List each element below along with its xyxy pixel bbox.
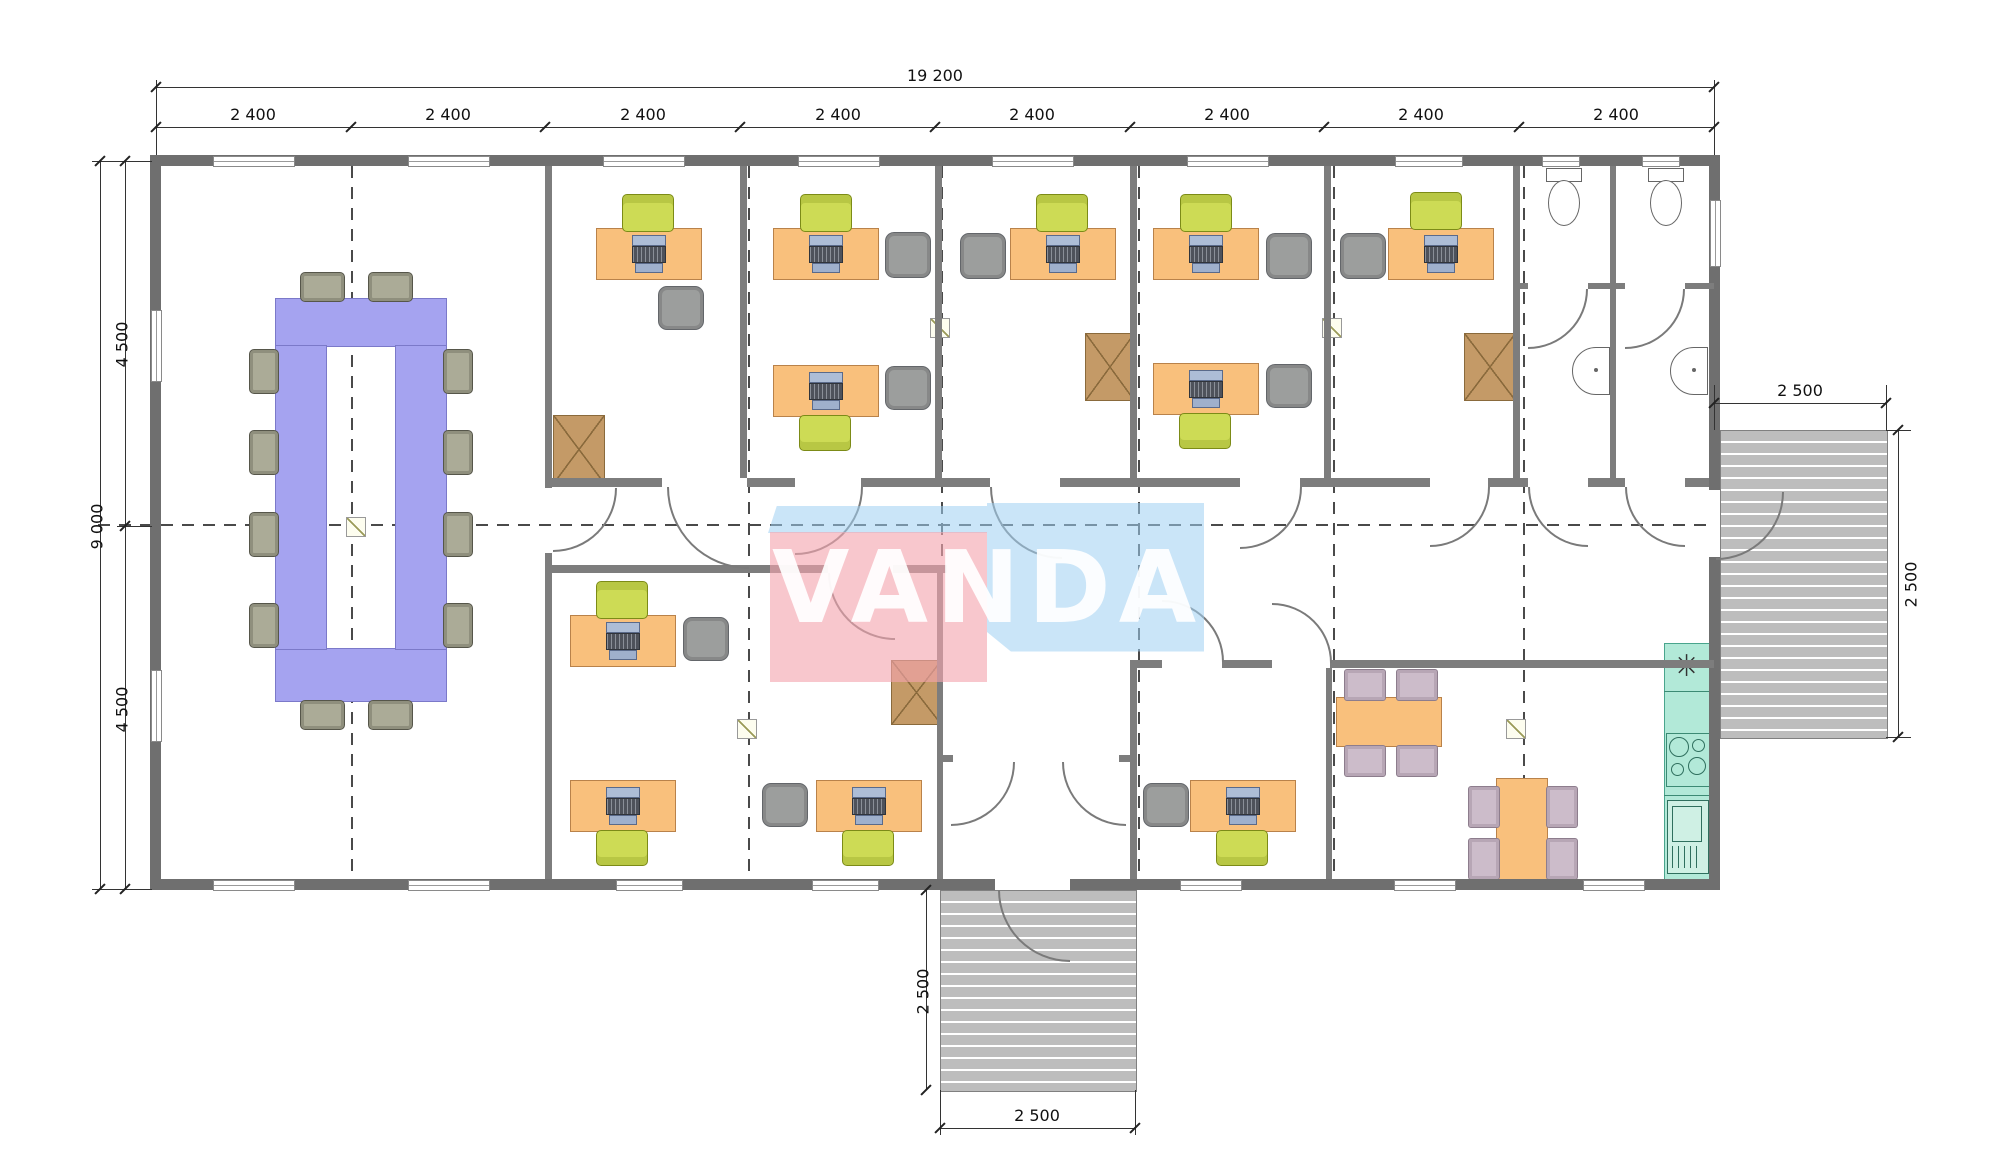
door-arc: [667, 487, 749, 569]
exterior-wall-left: [150, 155, 161, 890]
dim-half-height: 4 500: [113, 310, 132, 380]
dimension-line-sideporch-depth: [1898, 430, 1899, 737]
wall-wc-divider: [1610, 166, 1616, 482]
computer-icon: [850, 787, 886, 823]
conference-chair: [300, 700, 345, 730]
window: [151, 310, 162, 382]
conference-chair: [443, 349, 473, 394]
window: [1395, 156, 1463, 167]
window: [1187, 156, 1269, 167]
wall-conference-office-lower: [545, 553, 552, 879]
dining-chair: [1344, 745, 1386, 777]
dining-table: [1336, 697, 1442, 747]
dim-bay: 2 400: [1386, 105, 1456, 124]
conference-chair: [249, 430, 279, 475]
conference-chair: [249, 512, 279, 557]
dim-total-width: 19 200: [900, 66, 970, 85]
dim-bay: 2 400: [608, 105, 678, 124]
window: [798, 156, 880, 167]
fridge-door: [1672, 806, 1702, 842]
sink-drain: [1594, 368, 1598, 372]
counter-divider: [1664, 795, 1710, 796]
door-opening: [1625, 478, 1685, 487]
sink-icon: [1670, 347, 1708, 395]
dim-bay: 2 400: [1581, 105, 1651, 124]
window: [992, 156, 1074, 167]
dining-chair: [1546, 786, 1578, 828]
door-opening: [990, 478, 1060, 487]
stove-burner: [1669, 737, 1689, 757]
vestibule-doorwall-stub: [937, 755, 953, 762]
dim-porch-width: 2 500: [1002, 1106, 1072, 1125]
conference-chair: [300, 272, 345, 302]
conference-chair: [368, 700, 413, 730]
office-chair: [762, 783, 808, 827]
stove-burner: [1692, 739, 1705, 752]
task-chair: [1410, 192, 1462, 230]
computer-icon: [807, 235, 843, 271]
dim-porch-depth: 2 500: [914, 957, 933, 1027]
computer-icon: [807, 372, 843, 408]
conference-chair: [249, 349, 279, 394]
conference-chair: [249, 603, 279, 648]
window: [408, 156, 490, 167]
fridge-vents: [1672, 846, 1700, 868]
dimension-line-sideporch-width: [1714, 403, 1886, 404]
office-chair: [885, 366, 931, 410]
conference-table: [275, 648, 447, 702]
vestibule-doorwall-stub: [1119, 755, 1137, 762]
door-arc: [1240, 487, 1302, 549]
wall-office2-office3: [935, 166, 942, 482]
dining-chair: [1468, 838, 1500, 880]
conference-chair: [368, 272, 413, 302]
vestibule-wall-right: [1130, 668, 1137, 879]
window: [213, 880, 295, 891]
window: [1394, 880, 1456, 891]
wall-office4-office5: [1324, 166, 1331, 482]
door-opening: [1528, 478, 1588, 487]
office-chair: [960, 233, 1006, 279]
dimension-line-porch-width: [940, 1128, 1135, 1129]
toilet-icon: [1650, 180, 1682, 226]
side-porch: [1720, 430, 1888, 739]
computer-icon: [1187, 235, 1223, 271]
office-chair: [1266, 233, 1312, 279]
computer-icon: [1422, 235, 1458, 271]
wall-smalloffice-lunch: [1326, 668, 1332, 879]
vanda-logo-text: VANDA: [772, 534, 1192, 644]
office-chair: [1266, 364, 1312, 408]
door-opening: [795, 478, 861, 487]
conference-table: [395, 345, 447, 650]
conference-table: [275, 345, 327, 650]
ceiling-symbol: [737, 719, 757, 739]
door-opening: [1430, 478, 1488, 487]
grid-line: [1333, 166, 1335, 879]
extension-line: [1886, 385, 1887, 430]
door-arc: [1062, 762, 1126, 826]
task-chair: [1180, 194, 1232, 232]
office-chair: [885, 232, 931, 278]
wall-office5-wc: [1513, 166, 1520, 482]
window: [1180, 880, 1242, 891]
door-arc: [1272, 603, 1332, 663]
dimension-line-total: [156, 87, 1714, 88]
window: [1583, 880, 1645, 891]
ceiling-symbol: [346, 517, 366, 537]
office-chair: [1340, 233, 1386, 279]
wall-conference-offices: [545, 166, 552, 488]
conference-chair: [443, 430, 473, 475]
window: [151, 670, 162, 742]
sink-icon: [1572, 347, 1610, 395]
task-chair: [842, 830, 894, 866]
stove-burner: [1671, 763, 1684, 776]
toilet-icon: [1548, 180, 1580, 226]
dining-chair: [1468, 786, 1500, 828]
conference-chair: [443, 512, 473, 557]
computer-icon: [1044, 235, 1080, 271]
door-arc: [1625, 289, 1685, 349]
dim-sideporch-depth: 2 500: [1902, 550, 1921, 620]
door-arc: [1430, 487, 1490, 547]
door-opening: [662, 478, 747, 487]
door-opening: [1240, 478, 1300, 487]
door-arc: [1625, 487, 1685, 547]
dim-total-height: 9 000: [88, 492, 107, 562]
window: [616, 880, 683, 891]
dim-bay: 2 400: [803, 105, 873, 124]
extension-line: [156, 80, 157, 155]
cabinet: [1085, 333, 1135, 401]
grid-line: [1523, 166, 1525, 879]
cabinet: [553, 415, 605, 484]
computer-icon: [604, 622, 640, 658]
window: [812, 880, 879, 891]
floor-plan-canvas: ✳ VANDA 19 200 2 400 2 400 2 400 2 400 2…: [0, 0, 2000, 1160]
wall-office1-office2: [740, 166, 747, 482]
dim-sideporch-width: 2 500: [1765, 381, 1835, 400]
dining-chair: [1344, 669, 1386, 701]
window: [1642, 156, 1680, 167]
dim-bay: 2 400: [218, 105, 288, 124]
office-chair: [658, 286, 704, 330]
conference-chair: [443, 603, 473, 648]
door-arc: [1528, 289, 1588, 349]
dining-chair: [1546, 838, 1578, 880]
cabinet: [1464, 333, 1516, 401]
wall-office3-office4: [1130, 166, 1137, 482]
office-chair: [1143, 783, 1189, 827]
task-chair: [800, 194, 852, 232]
window: [408, 880, 490, 891]
office-chair: [683, 617, 729, 661]
computer-icon: [1224, 787, 1260, 823]
computer-icon: [1187, 370, 1223, 406]
dim-bay: 2 400: [1192, 105, 1262, 124]
window: [1542, 156, 1580, 167]
task-chair: [596, 830, 648, 866]
stove-burner: [1688, 757, 1706, 775]
task-chair: [622, 194, 674, 232]
task-chair: [1216, 830, 1268, 866]
task-chair: [1036, 194, 1088, 232]
dim-half-height: 4 500: [113, 675, 132, 745]
computer-icon: [604, 787, 640, 823]
extension-line: [1714, 80, 1715, 155]
task-chair: [799, 415, 851, 451]
task-chair: [596, 581, 648, 619]
computer-icon: [630, 235, 666, 271]
dining-chair: [1396, 669, 1438, 701]
exterior-wall-bottom: [150, 879, 1720, 890]
door-arc: [951, 762, 1015, 826]
exterior-wall-top: [150, 155, 1720, 166]
ceiling-symbol: [1506, 719, 1526, 739]
sink-drain: [1692, 368, 1696, 372]
conference-table: [275, 298, 447, 347]
counter-divider: [1664, 691, 1710, 692]
window: [213, 156, 295, 167]
window: [1710, 200, 1721, 267]
dim-bay: 2 400: [997, 105, 1067, 124]
door-arc: [1528, 487, 1588, 547]
dining-table: [1496, 778, 1548, 884]
dim-bay: 2 400: [413, 105, 483, 124]
task-chair: [1179, 413, 1231, 449]
dining-chair: [1396, 745, 1438, 777]
extension-line: [1714, 385, 1715, 430]
door-arc: [553, 488, 617, 552]
entrance-door-opening: [995, 879, 1070, 890]
window: [603, 156, 685, 167]
